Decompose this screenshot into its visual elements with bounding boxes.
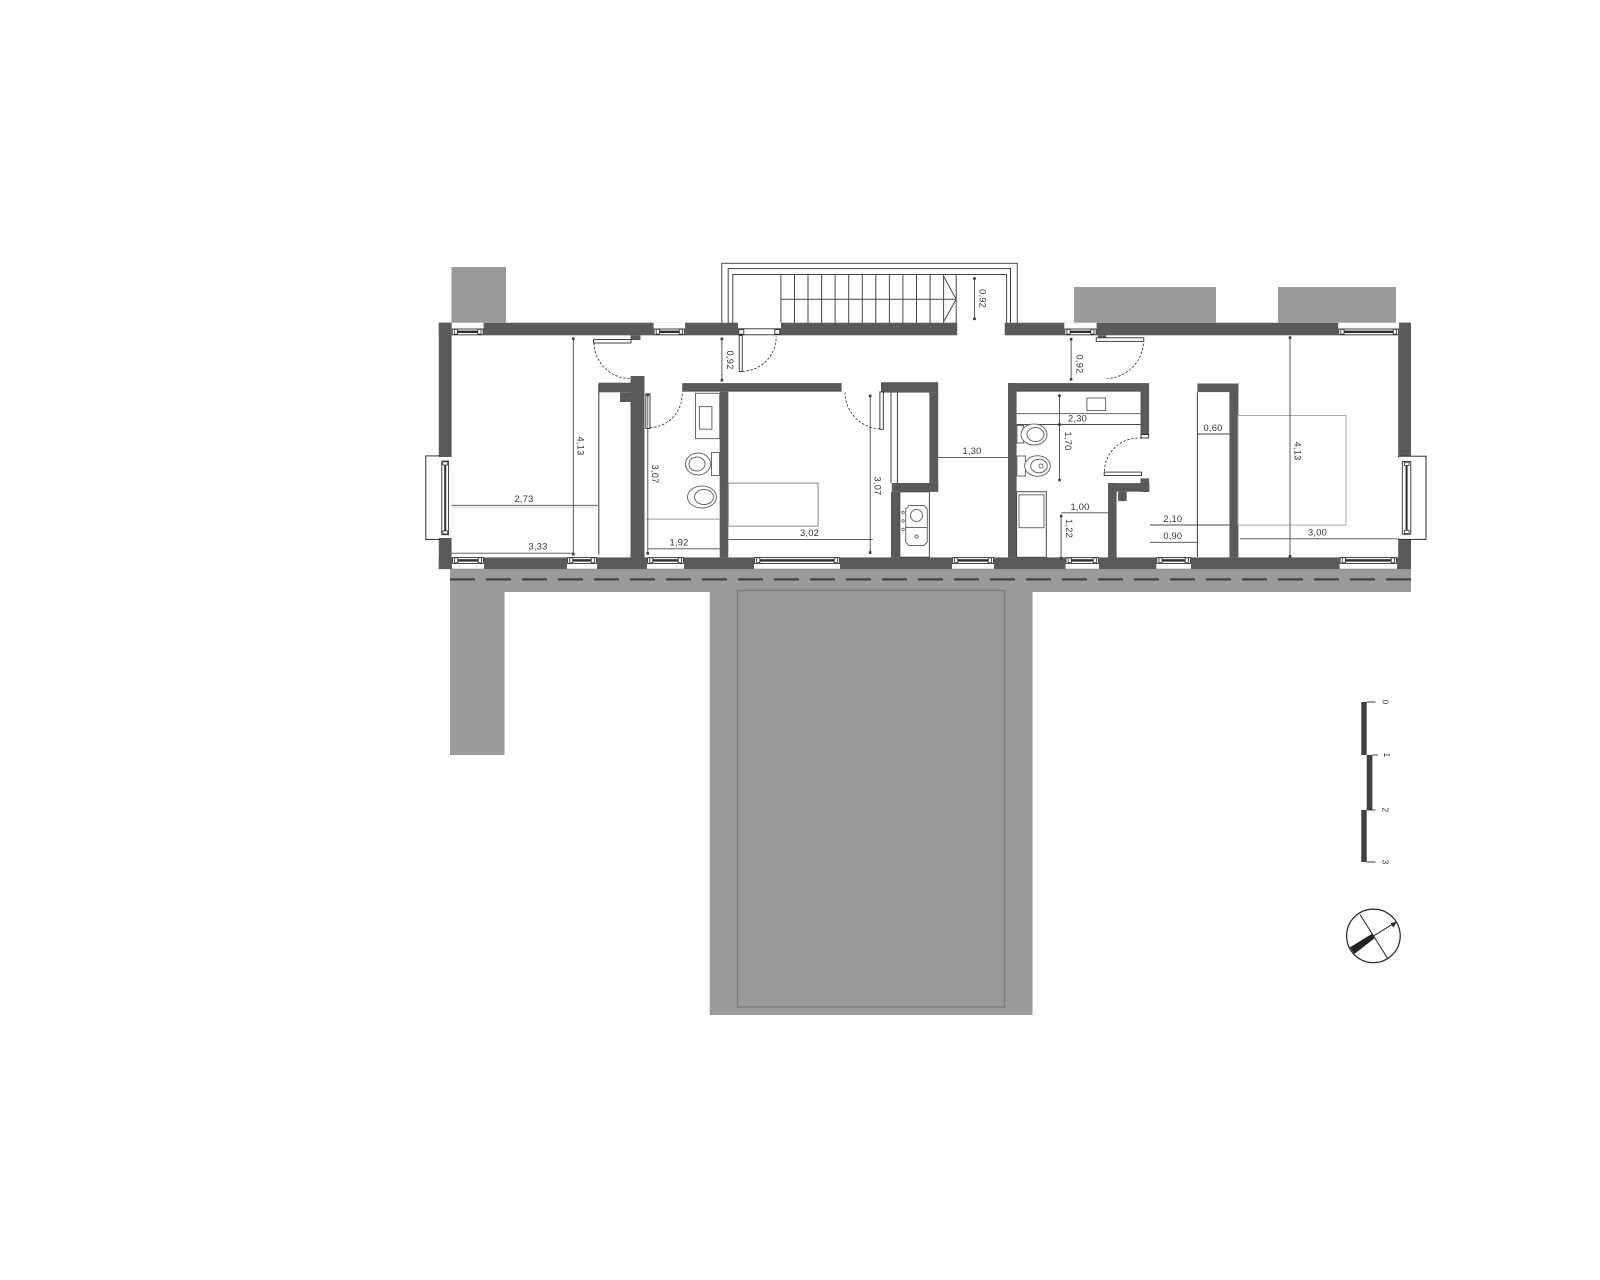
svg-text:3,07: 3,07 (873, 477, 883, 496)
svg-text:0,60: 0,60 (1204, 423, 1223, 433)
svg-text:1,92: 1,92 (670, 537, 689, 547)
svg-text:0: 0 (1381, 700, 1391, 705)
svg-text:0,92: 0,92 (1074, 355, 1084, 374)
svg-text:2,30: 2,30 (1068, 414, 1087, 424)
svg-text:3: 3 (1381, 860, 1391, 865)
svg-text:3,07: 3,07 (650, 465, 660, 484)
svg-text:1,70: 1,70 (1063, 432, 1073, 451)
svg-text:1: 1 (1382, 753, 1392, 758)
svg-text:3,33: 3,33 (529, 542, 548, 552)
svg-text:2,73: 2,73 (515, 494, 534, 504)
svg-text:1,00: 1,00 (1071, 502, 1090, 512)
svg-text:4,13: 4,13 (1292, 442, 1302, 461)
svg-text:0,92: 0,92 (725, 351, 735, 370)
svg-text:1,30: 1,30 (963, 446, 982, 456)
svg-text:2,10: 2,10 (1163, 514, 1182, 524)
svg-text:3,00: 3,00 (1308, 527, 1327, 537)
svg-text:0,90: 0,90 (1163, 531, 1182, 541)
svg-text:2: 2 (1381, 808, 1391, 813)
svg-text:4,13: 4,13 (576, 437, 586, 456)
svg-text:0,92: 0,92 (978, 289, 988, 308)
svg-text:3,02: 3,02 (800, 528, 819, 538)
svg-text:1,22: 1,22 (1064, 519, 1074, 538)
